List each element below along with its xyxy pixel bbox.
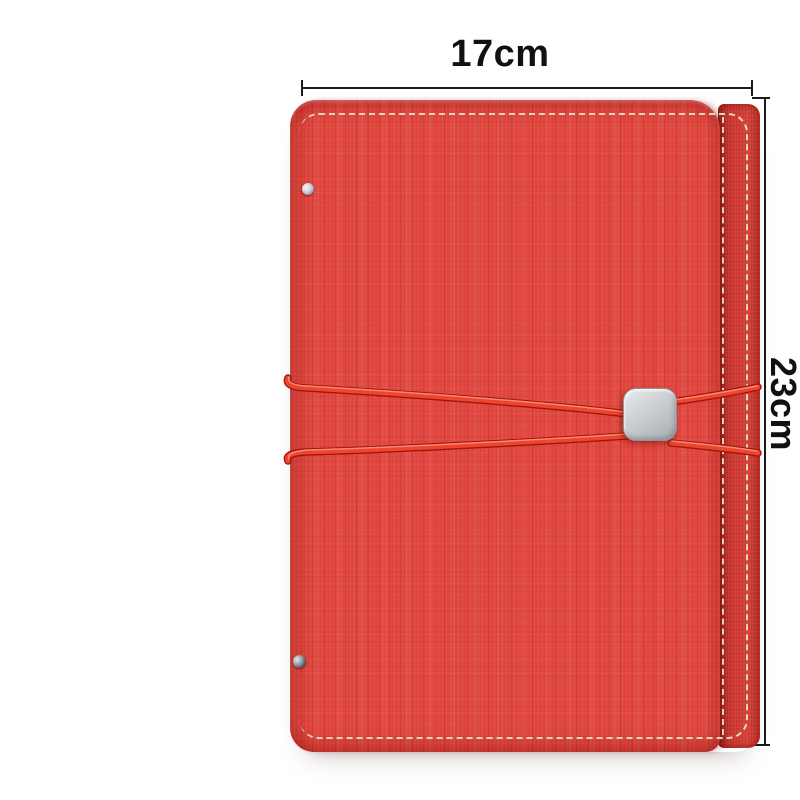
height-dimension-line xyxy=(764,98,766,746)
width-dimension-line xyxy=(302,87,752,89)
width-dimension-tick-right xyxy=(751,80,753,96)
fold-stitching xyxy=(722,117,724,735)
width-dimension-tick-left xyxy=(301,80,303,96)
height-dimension-tick-top xyxy=(752,97,770,99)
product-image-canvas: 17cm 23cm xyxy=(0,0,800,800)
rivet-top-icon xyxy=(302,183,314,195)
rivet-bottom-icon xyxy=(293,655,306,668)
height-dimension-label: 23cm xyxy=(763,352,800,456)
metal-buckle xyxy=(623,388,677,441)
width-dimension-label: 17cm xyxy=(400,33,600,75)
cover-stitching xyxy=(299,113,748,739)
notebook xyxy=(290,100,760,752)
